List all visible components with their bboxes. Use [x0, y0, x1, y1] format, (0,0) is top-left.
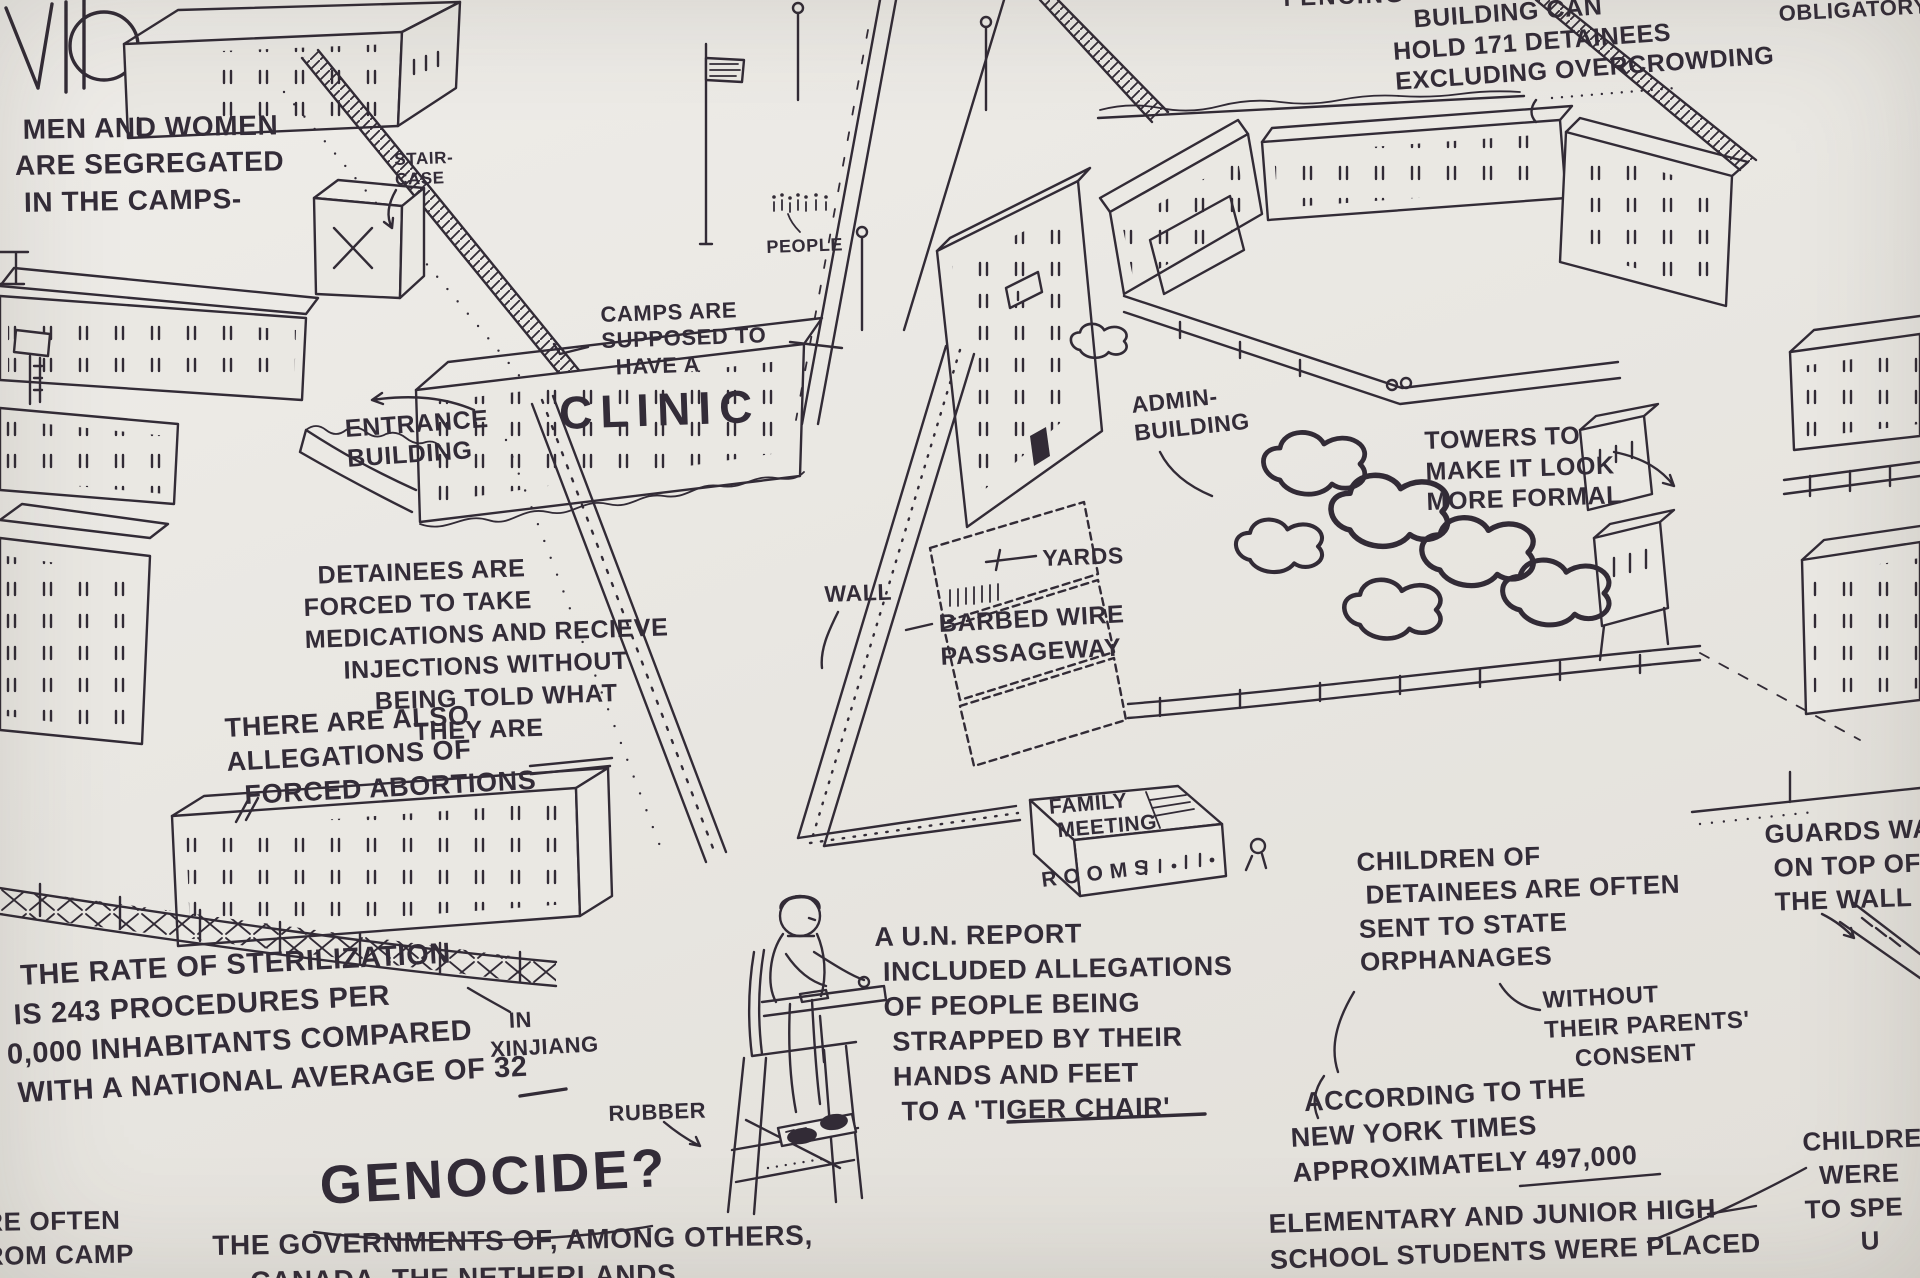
label-corner-partial: RE OFTEN ROM CAMP: [0, 1203, 134, 1273]
label-consent: WITHOUT THEIR PARENTS' CONSENT: [1542, 975, 1752, 1076]
admin-slab-building: [937, 168, 1127, 527]
right-edge-buildings: [1784, 316, 1920, 714]
label-entrance-building: ENTRANCE BUILDING: [344, 404, 492, 474]
label-wall: WALL: [824, 578, 893, 610]
camp-fence: [1128, 646, 1860, 740]
label-nyt: ACCORDING TO THE NEW YORK TIMES APPROXIM…: [1288, 1068, 1638, 1191]
label-guards-partial: GUARDS WALK ON TOP OF THE WALL: [1764, 811, 1920, 919]
label-family-meeting: FAMILY MEETING: [1048, 787, 1158, 844]
label-rubber: RUBBER: [608, 1097, 707, 1129]
label-children-partial: CHILDREN WERE TO SPE U: [1794, 1121, 1920, 1261]
stair-building: [314, 180, 424, 298]
label-towers: TOWERS TO MAKE IT LOOK MORE FORMAL: [1424, 419, 1623, 517]
label-yards: YARDS: [1042, 541, 1124, 573]
label-un-report: A U.N. REPORT INCLUDED ALLEGATIONS OF PE…: [874, 914, 1235, 1131]
label-staircase: STAIR- CASE: [394, 148, 454, 189]
label-segregated: MEN AND WOMEN ARE SEGREGATED IN THE CAMP…: [14, 107, 285, 221]
label-barbed-wire: BARBED WIRE PASSAGEWAY: [938, 598, 1127, 673]
label-clinic: CLINIC: [558, 377, 761, 443]
label-people: PEOPLE: [766, 233, 843, 259]
label-forced-abortions: THERE ARE ALSO ALLEGATIONS OF FORCED ABO…: [224, 696, 537, 813]
hand-drawn-camp-illustration: FENCING BUILDING CAN HOLD 171 DETAINEES …: [0, 0, 1920, 1278]
crowd-scribble: [772, 193, 828, 232]
flag-pole: [700, 44, 744, 244]
label-clinic-note: CAMPS ARE SUPPOSED TO HAVE A: [600, 296, 768, 381]
label-orphanages: CHILDREN OF DETAINEES ARE OFTEN SENT TO …: [1356, 835, 1683, 979]
left-barracks: [0, 252, 318, 400]
label-sterilization: THE RATE OF STERILIZATION IS 243 PROCEDU…: [2, 931, 529, 1115]
label-xinjiang: IN XINJIANG: [488, 1002, 599, 1063]
tiger-chair-figure: [728, 896, 886, 1214]
left-buildings: [0, 408, 178, 744]
